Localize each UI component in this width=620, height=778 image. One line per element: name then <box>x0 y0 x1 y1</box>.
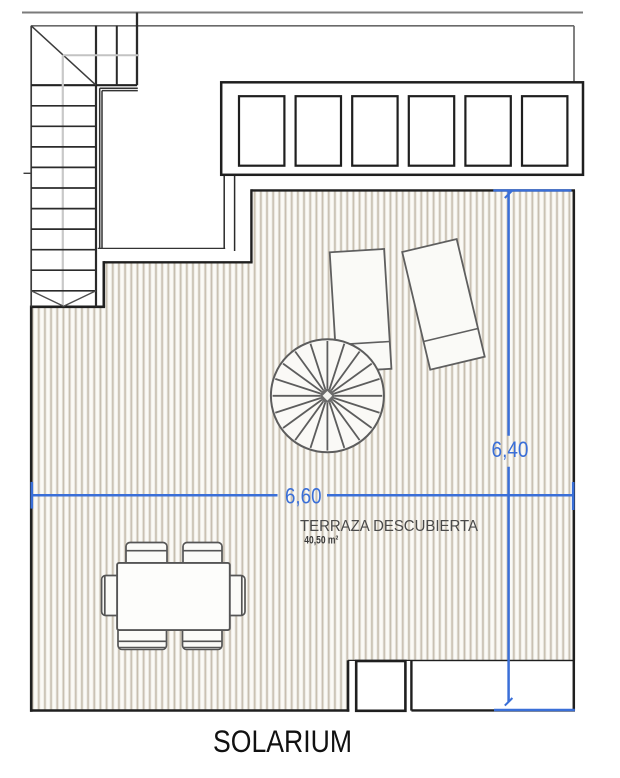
svg-text:6,60: 6,60 <box>285 483 322 508</box>
svg-text:SOLARIUM: SOLARIUM <box>213 723 352 759</box>
svg-text:TERRAZA DESCUBIERTA: TERRAZA DESCUBIERTA <box>300 518 479 535</box>
svg-text:40,50 m²: 40,50 m² <box>304 535 338 547</box>
svg-text:6,40: 6,40 <box>492 437 529 462</box>
